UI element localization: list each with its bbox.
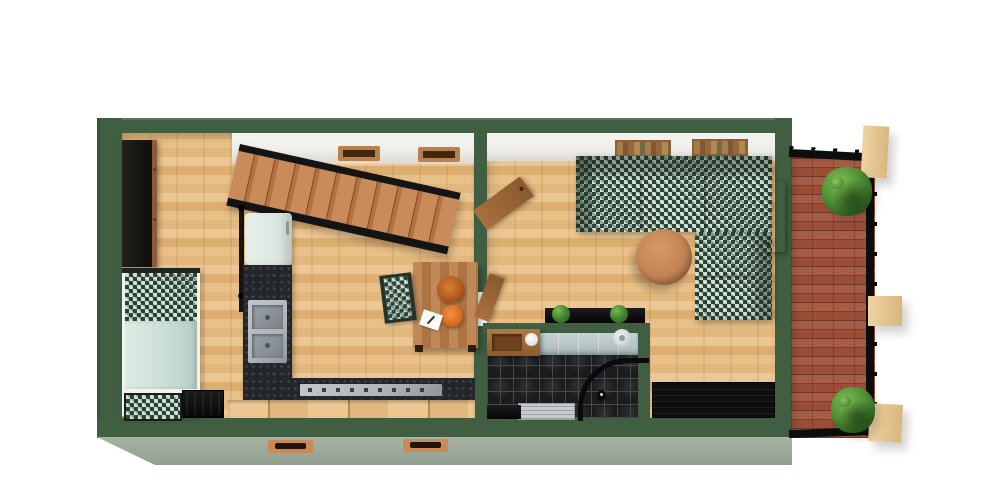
toilet-base (487, 405, 521, 419)
sofa-horizontal-section (576, 156, 772, 232)
bed-houndstooth-blanket (125, 273, 197, 321)
table-leg-left (415, 345, 423, 352)
wardrobe (122, 140, 157, 267)
wardrobe-wood-edge (152, 140, 157, 267)
shower-head (613, 329, 631, 347)
door-bedroom-living-handle (519, 186, 525, 192)
south-wall (97, 418, 792, 438)
shower-tray (518, 403, 575, 420)
timber-beam-middle (868, 296, 902, 326)
sink-basin-bottom (252, 334, 283, 358)
dining-chair (379, 272, 417, 324)
orange-bowl-large (437, 276, 464, 303)
refrigerator (245, 213, 292, 265)
dining-table (413, 262, 478, 348)
console-plant-right (610, 305, 628, 323)
timber-beam-top (861, 125, 890, 178)
wardrobe-handle-top (153, 168, 156, 171)
wall-niche-left (338, 146, 380, 161)
floorplan-scene (0, 0, 1000, 500)
cooktop-knobs (308, 388, 434, 392)
bush-top-highlight (830, 177, 844, 189)
shower-head-center (619, 335, 625, 341)
sink-drain-bottom (265, 343, 270, 348)
kitchen-sink (248, 300, 287, 363)
east-wall (775, 118, 792, 438)
wall-niche-right (418, 147, 460, 162)
vanity-sink-bowl (525, 333, 538, 346)
refrigerator-handle (286, 221, 289, 235)
console-plant-left (552, 305, 570, 323)
sofa-chaise-seam (699, 276, 755, 278)
exterior-vent-left-slot (275, 443, 306, 449)
exterior-vent-left (268, 440, 313, 453)
vanity-shelf (492, 334, 522, 351)
coffee-table (636, 229, 692, 285)
black-bench (182, 390, 224, 418)
bush-bottom-highlight (838, 396, 851, 407)
door-living-patio (763, 182, 785, 252)
north-wall (97, 118, 792, 134)
pen-on-note (427, 316, 435, 325)
sofa-seam-1 (640, 174, 642, 230)
houndstooth-ottoman (124, 393, 182, 421)
shower-drain-fixture (597, 390, 606, 401)
table-leg-right (468, 345, 476, 352)
wardrobe-handle-bottom (153, 218, 156, 221)
sideboard-grain (652, 386, 775, 414)
sofa-chaise-section (695, 232, 772, 320)
patio-bush-bottom (831, 387, 875, 433)
patio-bush-top (822, 167, 872, 216)
black-sideboard (652, 382, 775, 418)
bathroom-vanity (487, 329, 540, 356)
sink-basin-top (252, 305, 283, 329)
orange-bowl-small (441, 305, 463, 327)
west-wall (97, 118, 122, 438)
sofa-left-armrest (576, 156, 592, 232)
door-living-patio-handle (766, 242, 770, 246)
cooktop (300, 384, 442, 396)
exterior-vent-right (403, 439, 448, 452)
sofa-seam-2 (704, 174, 706, 230)
black-bench-slats (186, 393, 220, 415)
wall-niche-left-slot (343, 150, 375, 157)
wall-niche-right-slot (423, 151, 455, 158)
dining-chair-cushion (384, 276, 413, 321)
sink-drain-top (265, 315, 270, 320)
handrail-knob-top (238, 205, 245, 211)
shower-drain-dot (600, 393, 603, 396)
exterior-vent-right-slot (410, 442, 441, 448)
wood-ledge-bench (228, 400, 475, 418)
bed-mint-duvet (125, 321, 197, 389)
